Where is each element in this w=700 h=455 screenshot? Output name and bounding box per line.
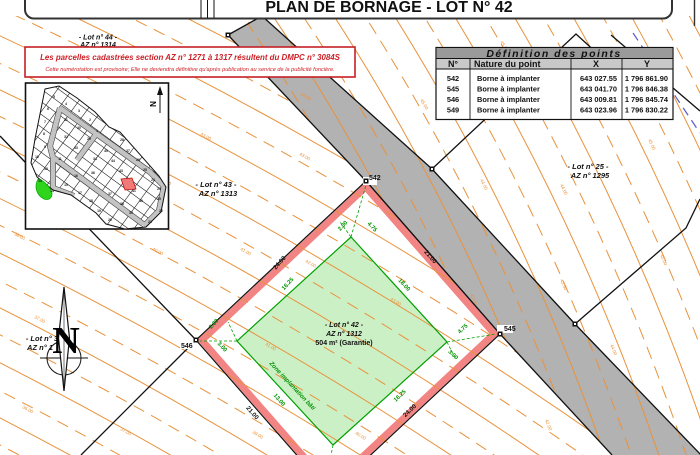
svg-text:N: N xyxy=(149,101,158,107)
svg-text:23: 23 xyxy=(157,187,161,191)
svg-text:PLAN DE BORNAGE - LOT N° 42: PLAN DE BORNAGE - LOT N° 42 xyxy=(265,0,512,16)
svg-text:33: 33 xyxy=(74,146,78,150)
svg-text:546: 546 xyxy=(181,343,193,350)
svg-text:Nature du point: Nature du point xyxy=(474,59,541,69)
svg-text:2: 2 xyxy=(89,118,91,122)
svg-text:41: 41 xyxy=(132,189,136,193)
svg-text:12: 12 xyxy=(44,167,48,171)
svg-text:504 m² (Garantie): 504 m² (Garantie) xyxy=(315,340,372,347)
svg-text:10: 10 xyxy=(35,155,39,159)
svg-text:31: 31 xyxy=(64,118,68,122)
svg-text:22: 22 xyxy=(159,209,163,213)
svg-text:29: 29 xyxy=(87,137,91,141)
svg-text:Borne à implanter: Borne à implanter xyxy=(477,74,540,83)
svg-text:542: 542 xyxy=(447,74,459,83)
svg-text:5: 5 xyxy=(53,95,55,99)
svg-text:32: 32 xyxy=(64,135,68,139)
svg-text:Borne à implanter: Borne à implanter xyxy=(477,106,540,115)
svg-text:643 009.81: 643 009.81 xyxy=(580,95,617,104)
svg-text:39: 39 xyxy=(129,211,133,215)
svg-text:6: 6 xyxy=(47,107,49,111)
svg-text:18: 18 xyxy=(89,199,93,203)
svg-text:19: 19 xyxy=(97,209,101,213)
svg-text:1: 1 xyxy=(96,129,98,133)
svg-text:- Lot n° 44 -: - Lot n° 44 - xyxy=(79,34,118,42)
svg-text:542: 542 xyxy=(369,175,381,182)
svg-text:13: 13 xyxy=(38,179,42,183)
svg-text:1 796 861.90: 1 796 861.90 xyxy=(625,74,668,83)
svg-text:N°: N° xyxy=(448,59,458,69)
svg-text:8: 8 xyxy=(43,132,45,136)
svg-text:38: 38 xyxy=(120,202,124,206)
svg-text:643 023.96: 643 023.96 xyxy=(580,106,617,115)
svg-text:546: 546 xyxy=(447,95,459,104)
svg-text:7: 7 xyxy=(44,120,46,124)
svg-text:- Lot n° 25 -: - Lot n° 25 - xyxy=(568,162,609,171)
svg-text:20: 20 xyxy=(108,218,112,222)
svg-text:Borne à implanter: Borne à implanter xyxy=(477,95,540,104)
svg-text:4: 4 xyxy=(65,102,67,106)
svg-text:14: 14 xyxy=(50,189,54,193)
svg-text:AZ n° 1313: AZ n° 1313 xyxy=(198,189,238,198)
svg-text:Les parcelles cadastrées secti: Les parcelles cadastrées section AZ n° 1… xyxy=(40,53,341,62)
svg-text:545: 545 xyxy=(447,85,459,94)
svg-text:17: 17 xyxy=(78,191,82,195)
svg-text:Cette numérotation est proviso: Cette numérotation est provisoire; Elle … xyxy=(45,67,334,73)
svg-text:3: 3 xyxy=(78,109,80,113)
svg-text:45: 45 xyxy=(104,149,108,153)
svg-text:545: 545 xyxy=(504,326,516,333)
svg-text:X: X xyxy=(593,59,599,69)
svg-text:15: 15 xyxy=(64,183,68,187)
svg-text:11: 11 xyxy=(58,157,62,161)
svg-text:- Lot n° 42 -: - Lot n° 42 - xyxy=(325,321,364,329)
svg-text:37: 37 xyxy=(126,149,130,153)
svg-text:36: 36 xyxy=(91,171,95,175)
svg-text:16: 16 xyxy=(74,174,78,178)
svg-text:- Lot n° 43 -: - Lot n° 43 - xyxy=(196,180,237,189)
svg-text:35: 35 xyxy=(157,197,161,201)
svg-text:28: 28 xyxy=(120,138,124,142)
svg-text:30: 30 xyxy=(77,126,81,130)
svg-text:AZ n° 1312: AZ n° 1312 xyxy=(325,330,362,338)
svg-text:25: 25 xyxy=(143,168,147,172)
svg-text:Borne à implanter: Borne à implanter xyxy=(477,85,540,94)
svg-text:26: 26 xyxy=(136,158,140,162)
svg-text:AZ n° 1295: AZ n° 1295 xyxy=(570,171,610,180)
svg-text:1 796 846.38: 1 796 846.38 xyxy=(625,85,668,94)
svg-text:1 796 830.22: 1 796 830.22 xyxy=(625,106,668,115)
svg-text:549: 549 xyxy=(447,106,459,115)
svg-text:43: 43 xyxy=(119,169,123,173)
svg-text:643 041.70: 643 041.70 xyxy=(580,85,617,94)
svg-text:Y: Y xyxy=(644,59,650,69)
svg-text:N: N xyxy=(52,320,79,362)
svg-text:37: 37 xyxy=(108,192,112,196)
svg-text:40: 40 xyxy=(139,199,143,203)
svg-text:1 796 845.74: 1 796 845.74 xyxy=(625,95,669,104)
svg-text:24: 24 xyxy=(151,178,155,182)
svg-text:44: 44 xyxy=(111,159,115,163)
svg-text:21: 21 xyxy=(148,220,152,224)
svg-text:643 027.55: 643 027.55 xyxy=(580,74,617,83)
svg-text:9: 9 xyxy=(44,145,46,149)
svg-text:34: 34 xyxy=(93,157,97,161)
